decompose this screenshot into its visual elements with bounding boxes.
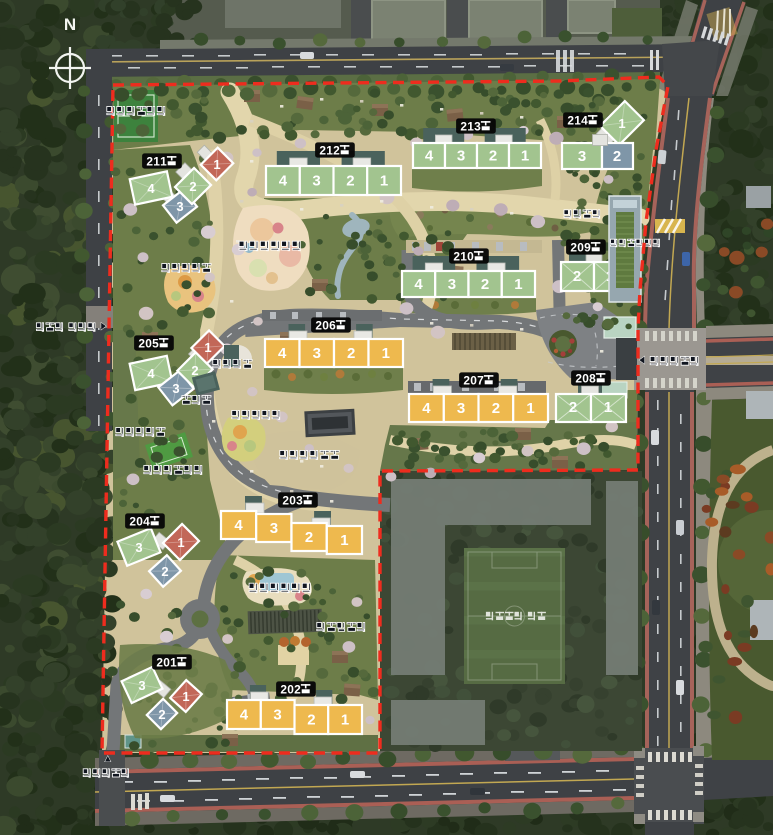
svg-text:2: 2: [489, 148, 497, 165]
svg-text:3: 3: [296, 493, 303, 507]
svg-text:1: 1: [160, 154, 167, 168]
svg-text:4: 4: [234, 517, 243, 534]
svg-text:9: 9: [584, 240, 591, 254]
svg-text:4: 4: [143, 514, 150, 528]
svg-text:4: 4: [581, 113, 588, 127]
svg-text:3: 3: [448, 276, 456, 293]
svg-text:2: 2: [191, 363, 198, 378]
svg-text:2: 2: [307, 712, 315, 729]
svg-text:2: 2: [161, 564, 168, 579]
svg-text:3: 3: [457, 148, 465, 165]
svg-text:3: 3: [135, 540, 142, 555]
svg-text:1: 1: [213, 157, 220, 172]
svg-text:2: 2: [305, 529, 313, 546]
svg-text:1: 1: [341, 712, 349, 729]
svg-text:4: 4: [278, 345, 287, 362]
svg-text:1: 1: [382, 345, 390, 362]
svg-text:2: 2: [294, 682, 301, 696]
svg-text:1: 1: [204, 340, 211, 355]
svg-text:2: 2: [333, 143, 340, 157]
svg-text:1: 1: [526, 400, 534, 417]
svg-text:4: 4: [425, 148, 434, 165]
svg-text:0: 0: [467, 249, 474, 263]
svg-text:1: 1: [604, 399, 612, 416]
svg-text:6: 6: [329, 318, 336, 332]
svg-text:4: 4: [414, 276, 423, 293]
svg-text:3: 3: [273, 707, 281, 724]
svg-text:1: 1: [521, 148, 529, 165]
svg-text:2: 2: [346, 173, 354, 190]
svg-text:8: 8: [589, 371, 596, 385]
svg-text:2: 2: [569, 399, 577, 416]
svg-text:4: 4: [147, 366, 155, 381]
svg-text:1: 1: [618, 116, 625, 131]
svg-text:3: 3: [138, 678, 145, 693]
svg-text:7: 7: [477, 373, 484, 387]
svg-text:2: 2: [481, 276, 489, 293]
svg-text:5: 5: [152, 336, 159, 350]
svg-text:1: 1: [340, 532, 348, 549]
svg-text:1: 1: [514, 276, 522, 293]
svg-text:3: 3: [270, 520, 278, 537]
svg-text:2: 2: [158, 707, 165, 722]
svg-text:1: 1: [380, 173, 388, 190]
svg-text:1: 1: [182, 689, 189, 704]
svg-text:3: 3: [578, 148, 586, 165]
svg-text:2: 2: [573, 268, 581, 285]
svg-text:3: 3: [312, 173, 320, 190]
svg-text:3: 3: [172, 381, 179, 396]
svg-text:3: 3: [457, 400, 465, 417]
svg-text:N: N: [64, 15, 76, 34]
svg-text:4: 4: [240, 707, 249, 724]
svg-text:4: 4: [422, 400, 431, 417]
svg-text:2: 2: [189, 179, 196, 194]
svg-text:1: 1: [177, 535, 184, 550]
svg-text:3: 3: [474, 119, 481, 133]
svg-text:4: 4: [147, 181, 155, 196]
svg-text:2: 2: [492, 400, 500, 417]
svg-text:3: 3: [313, 345, 321, 362]
svg-text:1: 1: [170, 655, 177, 669]
svg-text:3: 3: [176, 199, 183, 214]
svg-text:2: 2: [613, 148, 621, 165]
svg-text:4: 4: [279, 173, 288, 190]
svg-text:2: 2: [347, 345, 355, 362]
